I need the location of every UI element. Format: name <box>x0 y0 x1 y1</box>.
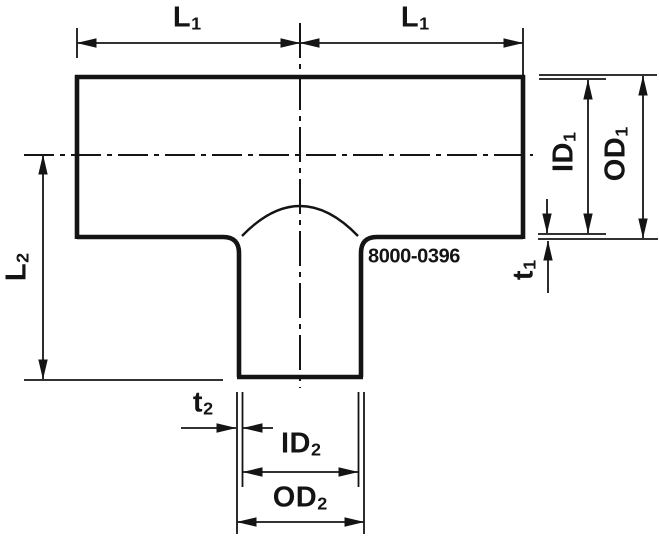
dim-label-od1: OD1 <box>602 127 631 182</box>
label-text: L <box>1 263 33 281</box>
dim-label-id2: ID2 <box>281 430 321 459</box>
pipe-bottom-left-and-branch-left-wall <box>77 237 239 377</box>
label-text: OD <box>600 137 632 182</box>
dim-label-l1-right: L1 <box>401 4 429 33</box>
label-text: OD <box>273 482 318 514</box>
label-subscript: 2 <box>203 399 213 419</box>
dimension-lines <box>24 28 658 534</box>
label-subscript: 2 <box>317 494 327 514</box>
label-text: L <box>401 2 419 34</box>
label-text: t <box>193 387 203 419</box>
label-subscript: 2 <box>13 253 33 263</box>
label-subscript: 1 <box>520 260 540 270</box>
label-text: t <box>508 270 540 280</box>
dim-label-t1: t1 <box>510 260 539 280</box>
label-subscript: 1 <box>419 14 429 34</box>
dim-label-l2: L2 <box>3 253 32 281</box>
label-subscript: 1 <box>191 14 201 34</box>
label-subscript: 1 <box>612 127 632 137</box>
dim-label-od2: OD2 <box>273 484 328 513</box>
dim-label-id1: ID1 <box>550 132 579 172</box>
part-number: 8000-0396 <box>368 246 460 269</box>
label-subscript: 1 <box>560 132 580 142</box>
tee-technical-drawing: L1 L1 ID1 OD1 t1 L2 t2 ID2 OD2 8000-0396 <box>0 0 659 542</box>
label-subscript: 2 <box>311 440 321 460</box>
label-text: ID <box>548 142 580 172</box>
dim-label-t2: t2 <box>193 389 213 418</box>
tee-drawing-canvas <box>0 0 659 542</box>
label-text: ID <box>281 428 311 460</box>
label-text: L <box>173 2 191 34</box>
dim-label-l1-left: L1 <box>173 4 201 33</box>
